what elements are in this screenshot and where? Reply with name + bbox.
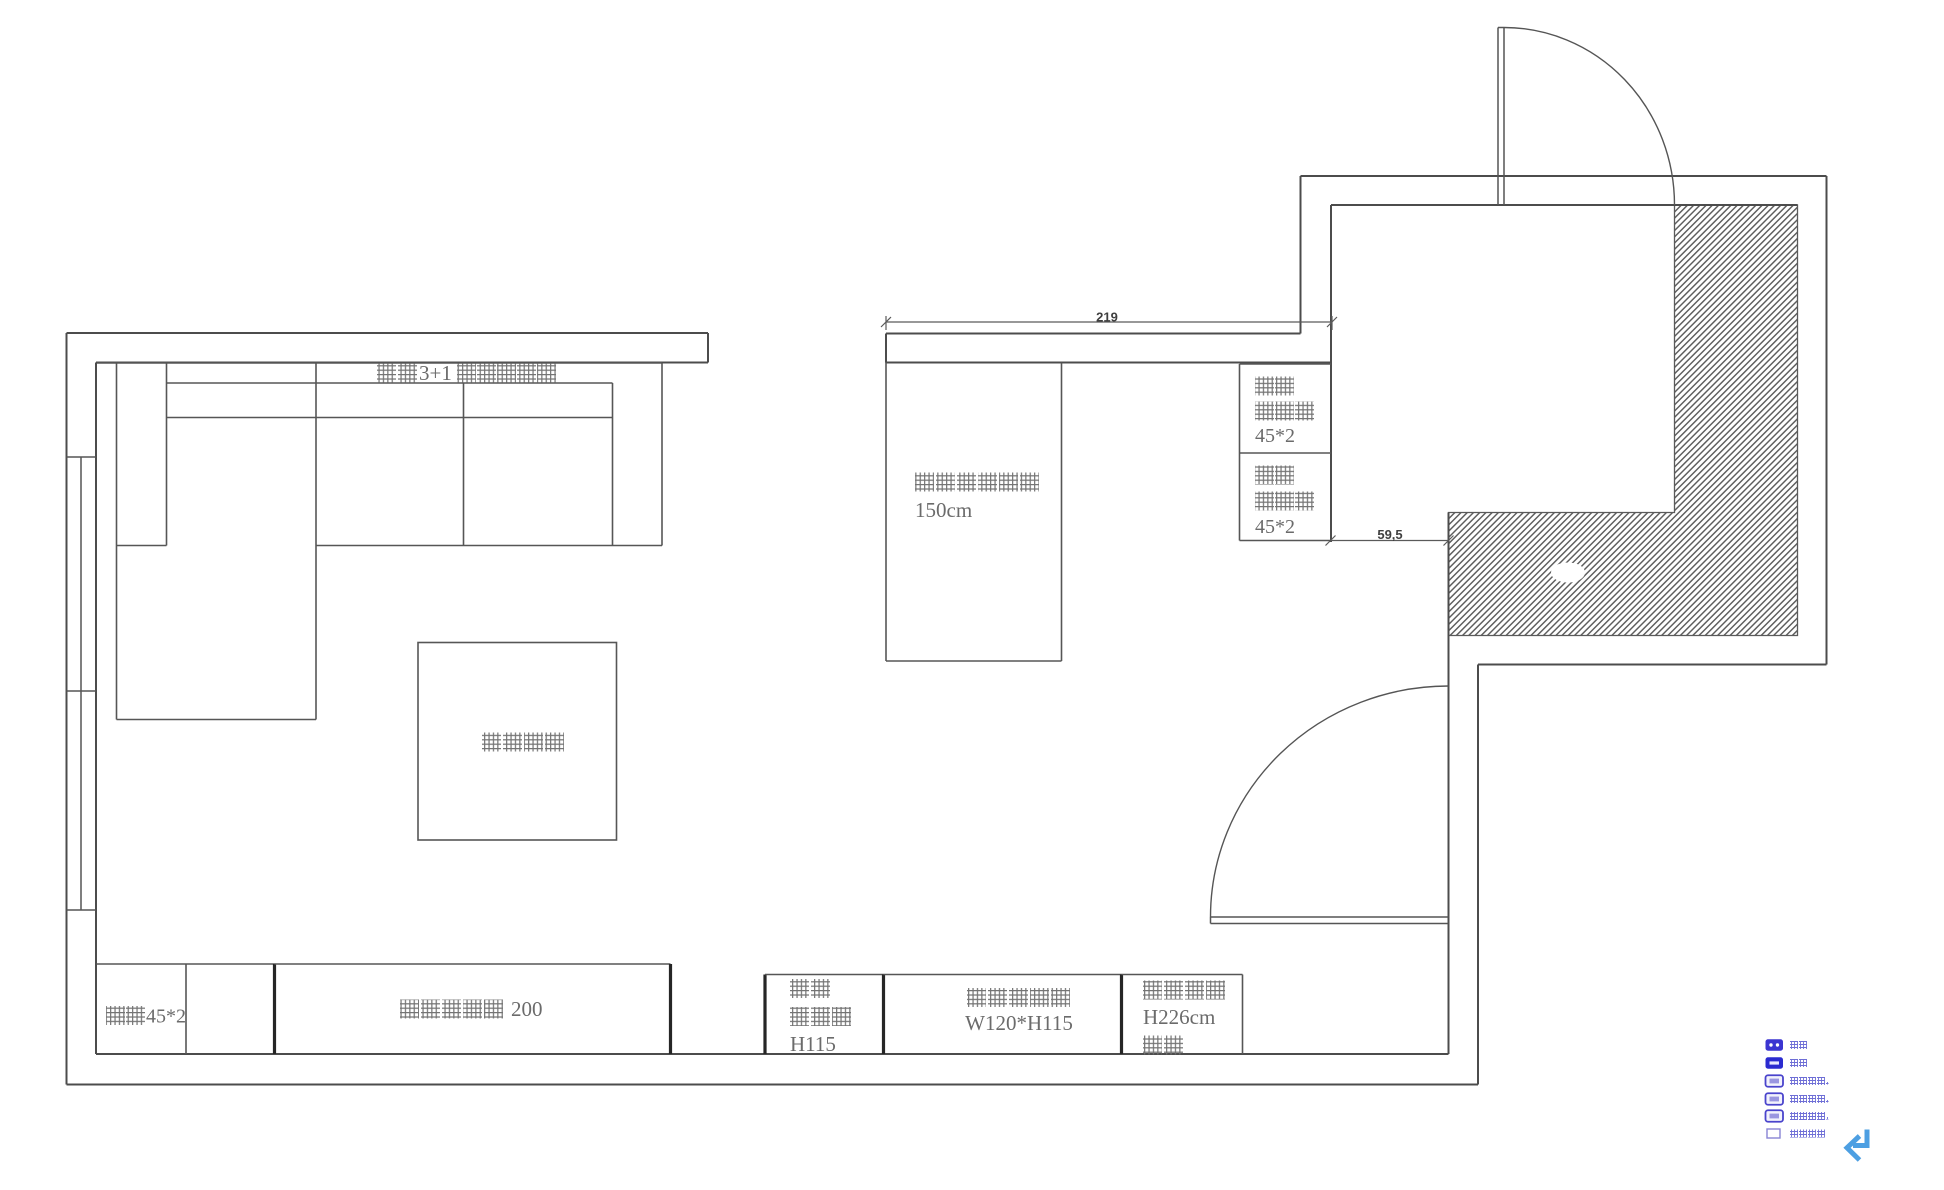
svg-text:200: 200 bbox=[511, 997, 543, 1021]
svg-text:59,5: 59,5 bbox=[1377, 527, 1402, 542]
svg-text:3+1: 3+1 bbox=[419, 361, 452, 385]
svg-text:W120*H115: W120*H115 bbox=[965, 1011, 1073, 1035]
svg-text:150cm: 150cm bbox=[915, 498, 972, 522]
svg-text:45*2: 45*2 bbox=[1255, 516, 1295, 538]
svg-text:45*2: 45*2 bbox=[1255, 425, 1295, 447]
svg-text:219: 219 bbox=[1096, 310, 1118, 325]
svg-text:H115: H115 bbox=[790, 1032, 836, 1056]
svg-text:45*2: 45*2 bbox=[146, 1006, 186, 1028]
svg-text:H226cm: H226cm bbox=[1143, 1005, 1215, 1029]
